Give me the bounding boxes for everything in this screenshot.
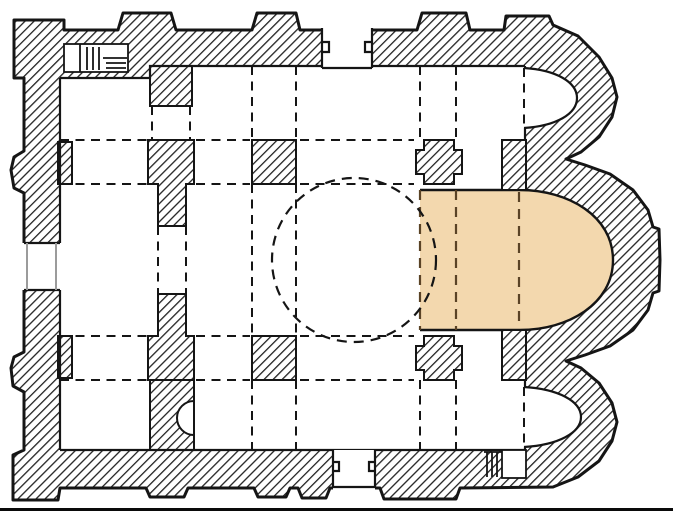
central-apse-highlight xyxy=(420,190,613,330)
south-door-opening xyxy=(333,450,375,491)
east-wall-south-pier xyxy=(502,330,526,380)
bottom-rule xyxy=(0,508,673,511)
east-wall-north-pier xyxy=(502,140,526,190)
north-door-opening xyxy=(322,24,372,68)
narthex-wall-top-stub xyxy=(150,66,192,106)
se-stair-outline xyxy=(502,450,526,478)
bema-highlight-fill xyxy=(420,190,613,330)
northwest-pier xyxy=(252,140,296,184)
west-door-opening xyxy=(20,243,60,290)
southwest-pier xyxy=(252,336,296,380)
floor-plan-image xyxy=(0,0,673,516)
church-floor-plan xyxy=(0,0,673,516)
northwest-staircase xyxy=(64,44,128,72)
